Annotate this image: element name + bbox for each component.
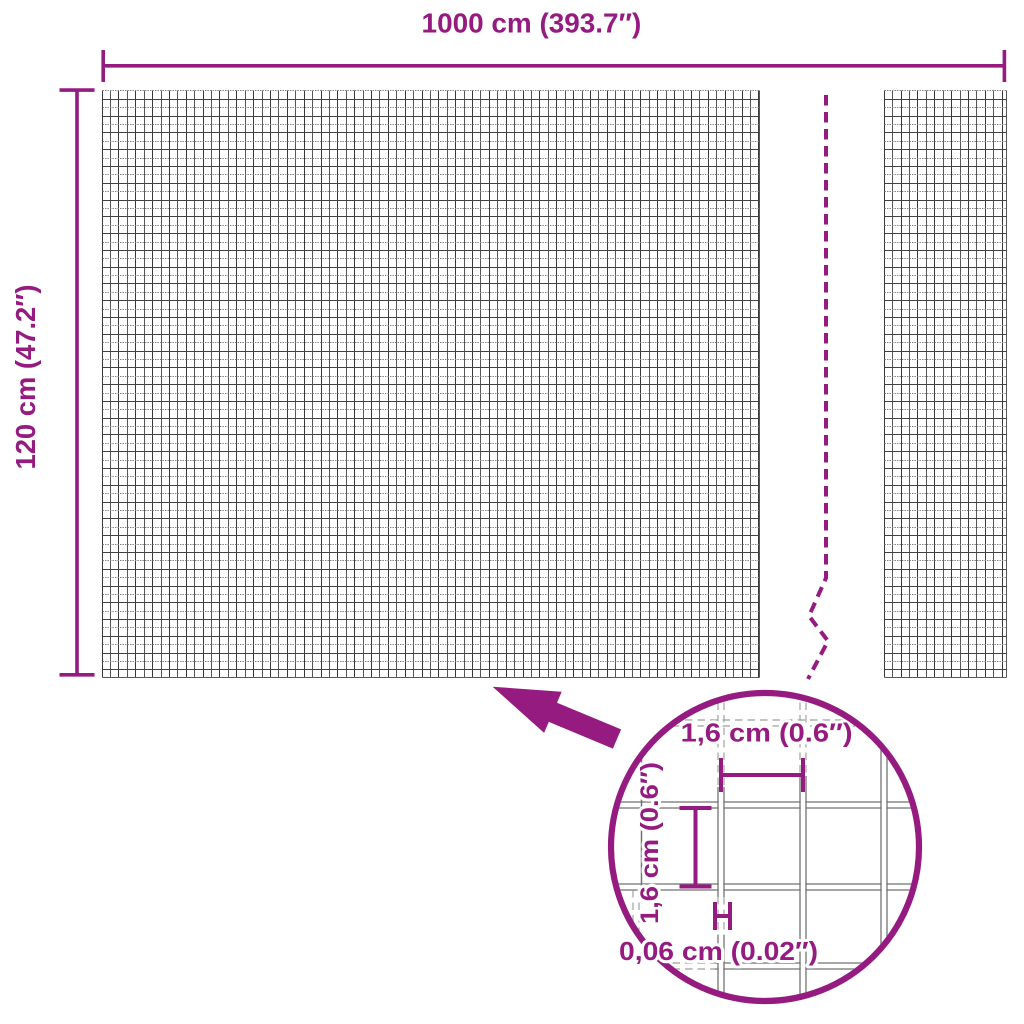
- svg-text:1,6 cm (0.6″): 1,6 cm (0.6″): [636, 762, 664, 924]
- svg-text:120 cm (47.2″): 120 cm (47.2″): [10, 285, 41, 470]
- svg-text:1,6 cm (0.6″): 1,6 cm (0.6″): [681, 717, 853, 747]
- svg-text:0,06 cm (0.02″): 0,06 cm (0.02″): [619, 936, 818, 966]
- svg-text:1000 cm (393.7″): 1000 cm (393.7″): [422, 8, 642, 39]
